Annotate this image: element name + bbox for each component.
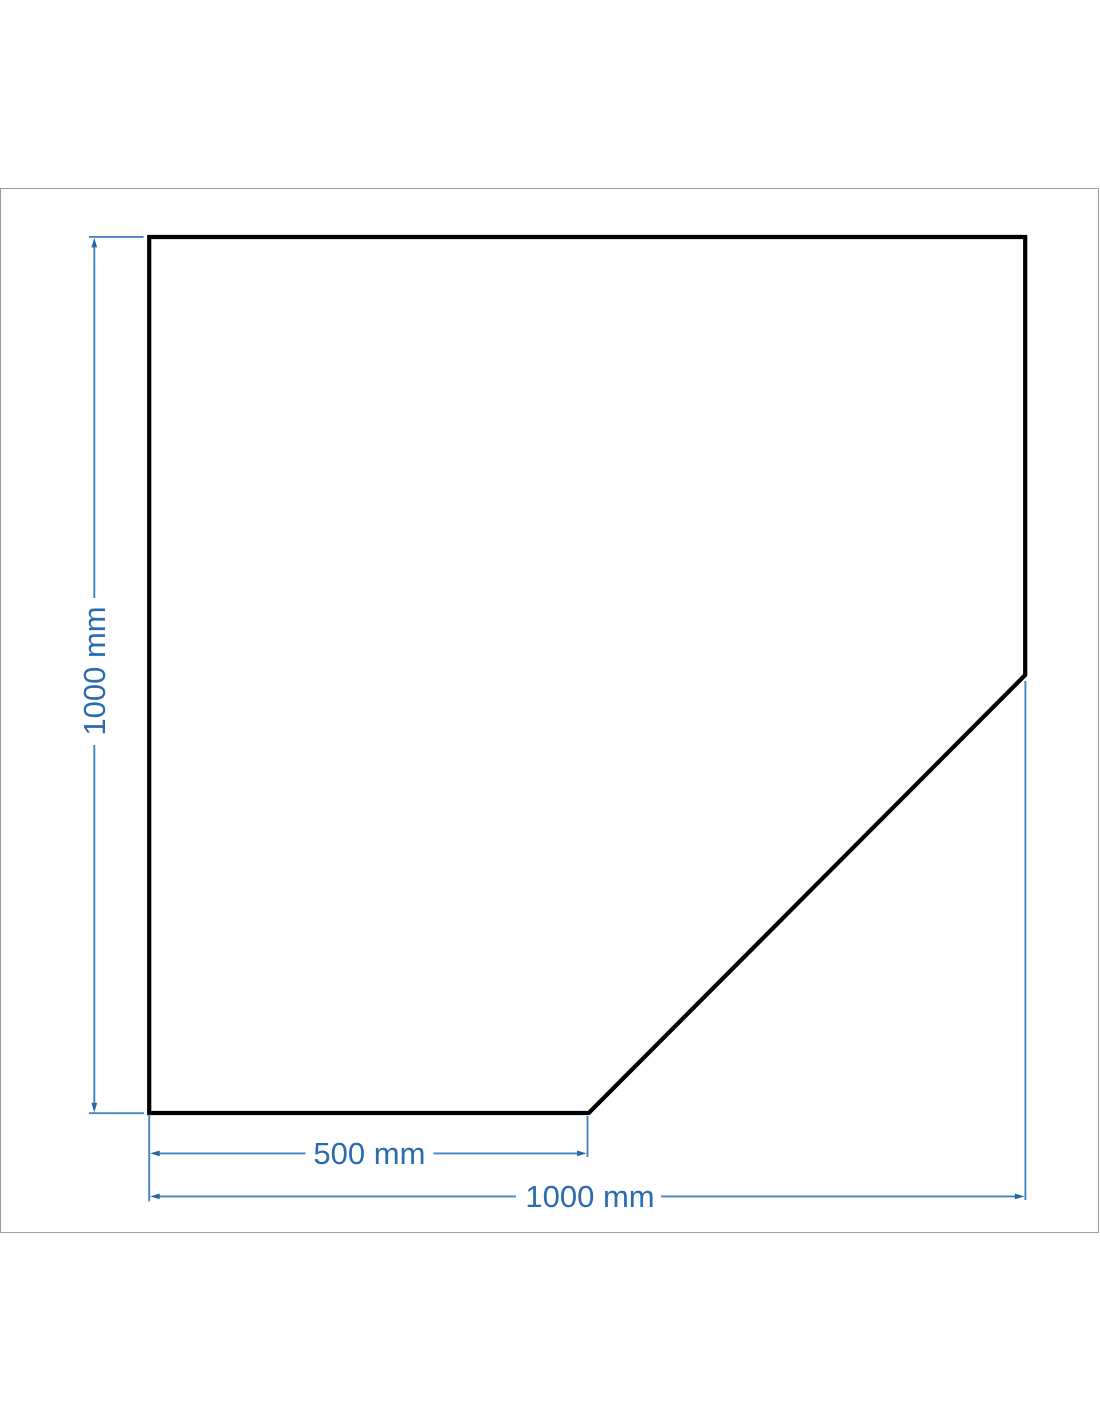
svg-text:500 mm: 500 mm — [313, 1136, 425, 1171]
svg-text:1000 mm: 1000 mm — [525, 1179, 654, 1214]
svg-text:1000 mm: 1000 mm — [77, 606, 112, 735]
